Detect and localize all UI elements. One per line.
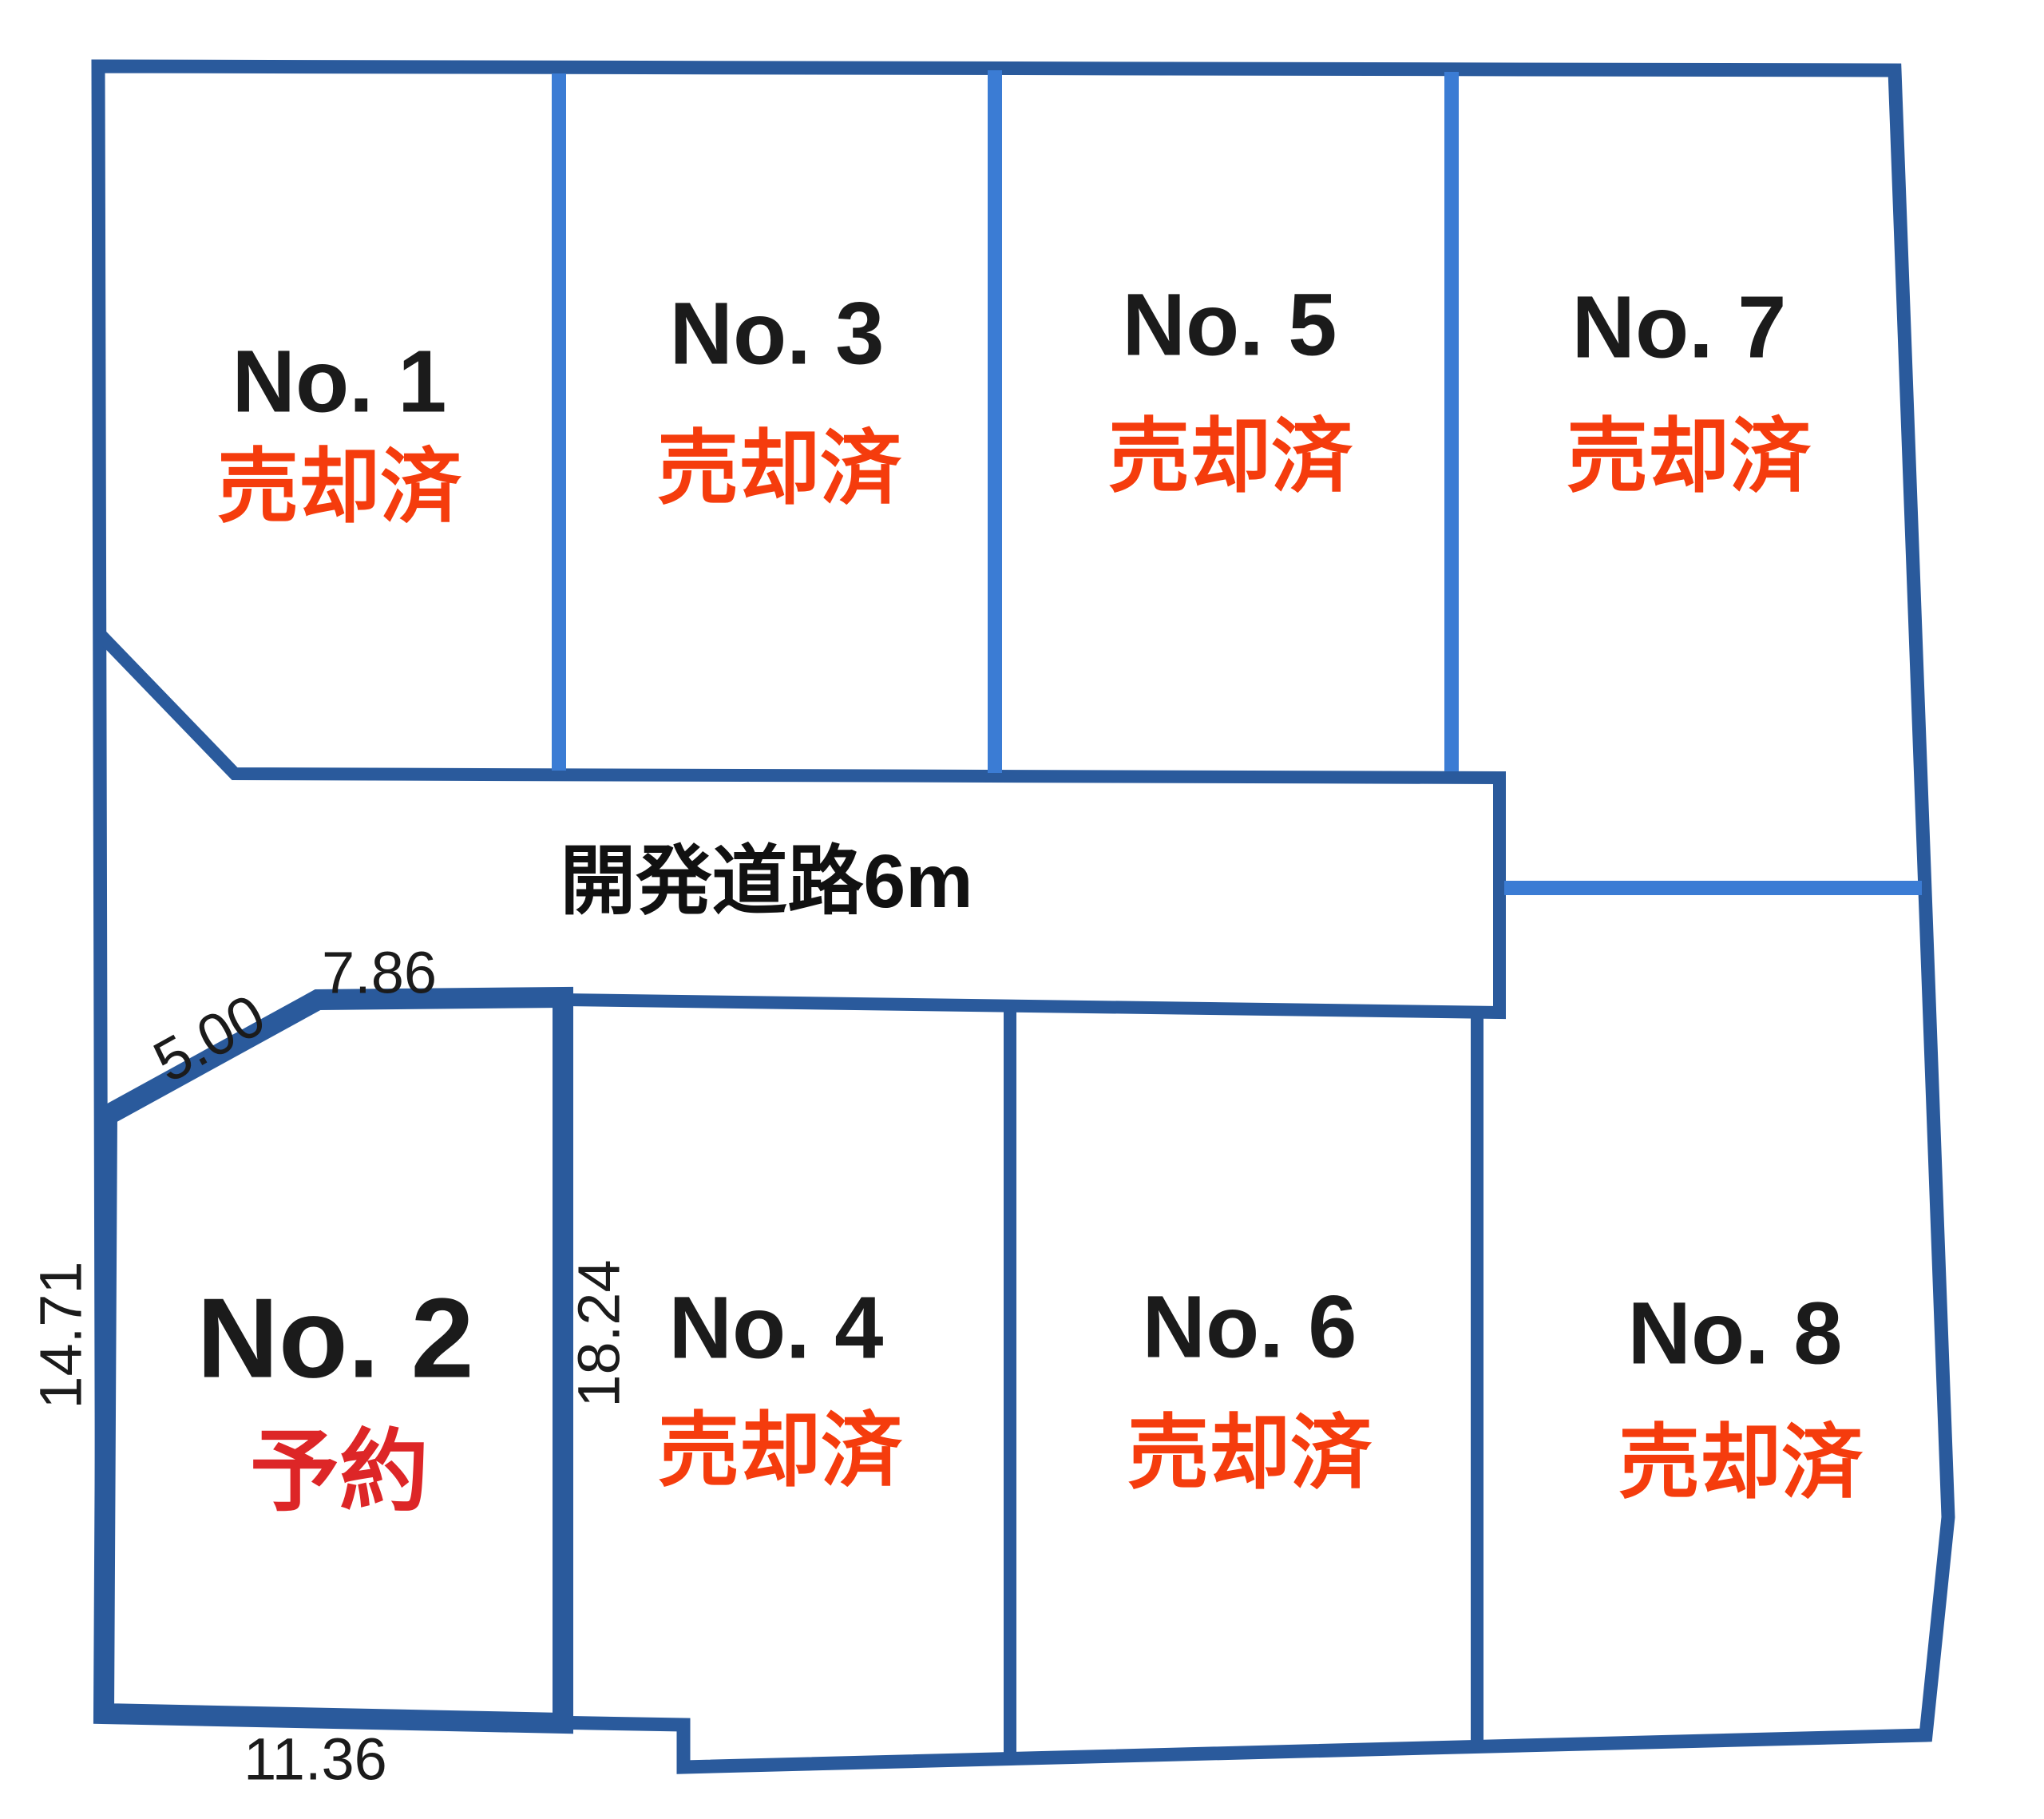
plot-no2-status: 予約 xyxy=(250,1422,429,1522)
plot-no5-status: 売却済 xyxy=(1108,411,1353,502)
plot-no5: No. 5 売却済 xyxy=(1108,276,1353,503)
lot-map-svg: 開発道路6m No. 1 売却済 No. 3 売却済 No. 5 売却済 No.… xyxy=(0,0,2044,1819)
plot-no7-status: 売却済 xyxy=(1567,411,1812,502)
dim-no2-top: 7.86 xyxy=(322,940,437,1006)
plot-no1-status: 売却済 xyxy=(217,442,462,533)
dim-no2-bottom: 11.36 xyxy=(244,1726,387,1793)
road-label: 開発道路6m xyxy=(560,839,972,924)
plot-no1-number: No. 1 xyxy=(232,333,447,431)
plot-no8: No. 8 売却済 xyxy=(1618,1285,1864,1509)
plot-no6-number: No. 6 xyxy=(1143,1278,1357,1377)
plot-no1: No. 1 売却済 xyxy=(217,333,462,533)
plot-no7-number: No. 7 xyxy=(1572,279,1787,377)
plot-no8-status: 売却済 xyxy=(1618,1417,1864,1508)
dim-no2-left: 14.71 xyxy=(28,1261,94,1409)
plot-no4: No. 4 売却済 xyxy=(658,1279,903,1497)
plot-no4-number: No. 4 xyxy=(669,1279,884,1377)
plot-no7: No. 7 売却済 xyxy=(1567,279,1812,503)
plot-no2: No. 2 予約 xyxy=(196,1275,473,1522)
plot-no3-number: No. 3 xyxy=(670,285,885,383)
plot-no2-number: No. 2 xyxy=(196,1275,473,1402)
plot-no6: No. 6 売却済 xyxy=(1127,1278,1373,1500)
plot-no4-status: 売却済 xyxy=(658,1405,903,1496)
plot-no5-number: No. 5 xyxy=(1123,276,1337,374)
dim-no2-right: 18.24 xyxy=(566,1259,632,1407)
road-top-edge xyxy=(101,635,1499,778)
plot-no8-number: No. 8 xyxy=(1628,1285,1843,1383)
lot-map-canvas: 開発道路6m No. 1 売却済 No. 3 売却済 No. 5 売却済 No.… xyxy=(0,0,2044,1819)
plot-no6-status: 売却済 xyxy=(1127,1408,1373,1499)
plot-no3: No. 3 売却済 xyxy=(657,285,902,515)
plot-no3-status: 売却済 xyxy=(657,423,902,514)
